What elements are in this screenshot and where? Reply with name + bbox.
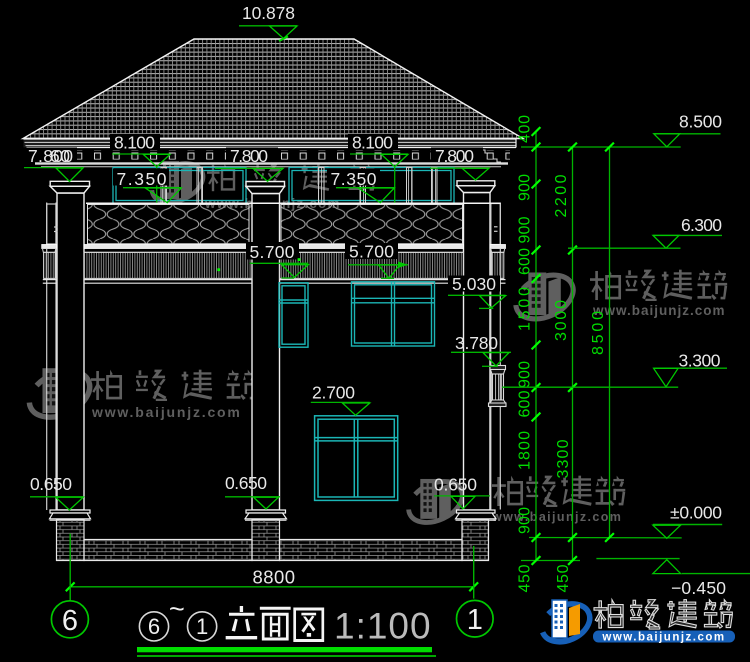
svg-text:3000: 3000 [553,300,570,341]
svg-text:5.030: 5.030 [452,274,496,294]
svg-text:±0.000: ±0.000 [670,503,722,523]
svg-text:www.baijunjz.com: www.baijunjz.com [91,404,242,420]
svg-text:1:100: 1:100 [334,606,432,647]
svg-text:1800: 1800 [517,431,534,470]
svg-text:600: 600 [517,390,534,417]
svg-text:3300: 3300 [555,439,572,478]
svg-text:0.650: 0.650 [225,473,267,493]
svg-text:2.700: 2.700 [312,383,355,403]
svg-text:~: ~ [169,594,185,624]
svg-text:www.baijunjz.com: www.baijunjz.com [601,632,725,644]
svg-text:8800: 8800 [253,567,296,588]
svg-text:www.baijunjz.com: www.baijunjz.com [491,510,622,524]
svg-text:www.baijunjz.com: www.baijunjz.com [592,303,726,318]
svg-text:900: 900 [517,216,534,243]
svg-text:8.500: 8.500 [679,112,722,132]
svg-text:1: 1 [196,614,208,639]
svg-text:3.780: 3.780 [455,333,498,353]
svg-text:8.100: 8.100 [352,133,393,153]
svg-text:900: 900 [517,174,534,201]
svg-text:5.700: 5.700 [349,242,394,262]
svg-text:6.300: 6.300 [681,215,722,235]
svg-text:900: 900 [517,361,534,388]
svg-text:8.100: 8.100 [114,133,155,153]
svg-text:900: 900 [517,507,534,534]
svg-text:0.650: 0.650 [30,474,72,494]
svg-text:60: 60 [50,146,70,166]
svg-text:0.650: 0.650 [434,475,477,495]
svg-text:450: 450 [517,564,534,592]
svg-text:450: 450 [555,564,572,592]
svg-text:10.878: 10.878 [242,3,295,23]
svg-text:7.350: 7.350 [117,169,167,189]
svg-text:7.800: 7.800 [230,146,268,166]
svg-text:5.700: 5.700 [250,242,295,262]
svg-text:7.350: 7.350 [331,169,377,189]
svg-text:7.800: 7.800 [435,146,474,166]
svg-text:6: 6 [148,614,160,639]
svg-text:1: 1 [467,604,483,636]
svg-text:−0.450: −0.450 [671,578,726,598]
svg-text:400: 400 [517,115,534,143]
svg-text:6: 6 [62,605,78,637]
svg-text:600: 600 [517,248,534,275]
